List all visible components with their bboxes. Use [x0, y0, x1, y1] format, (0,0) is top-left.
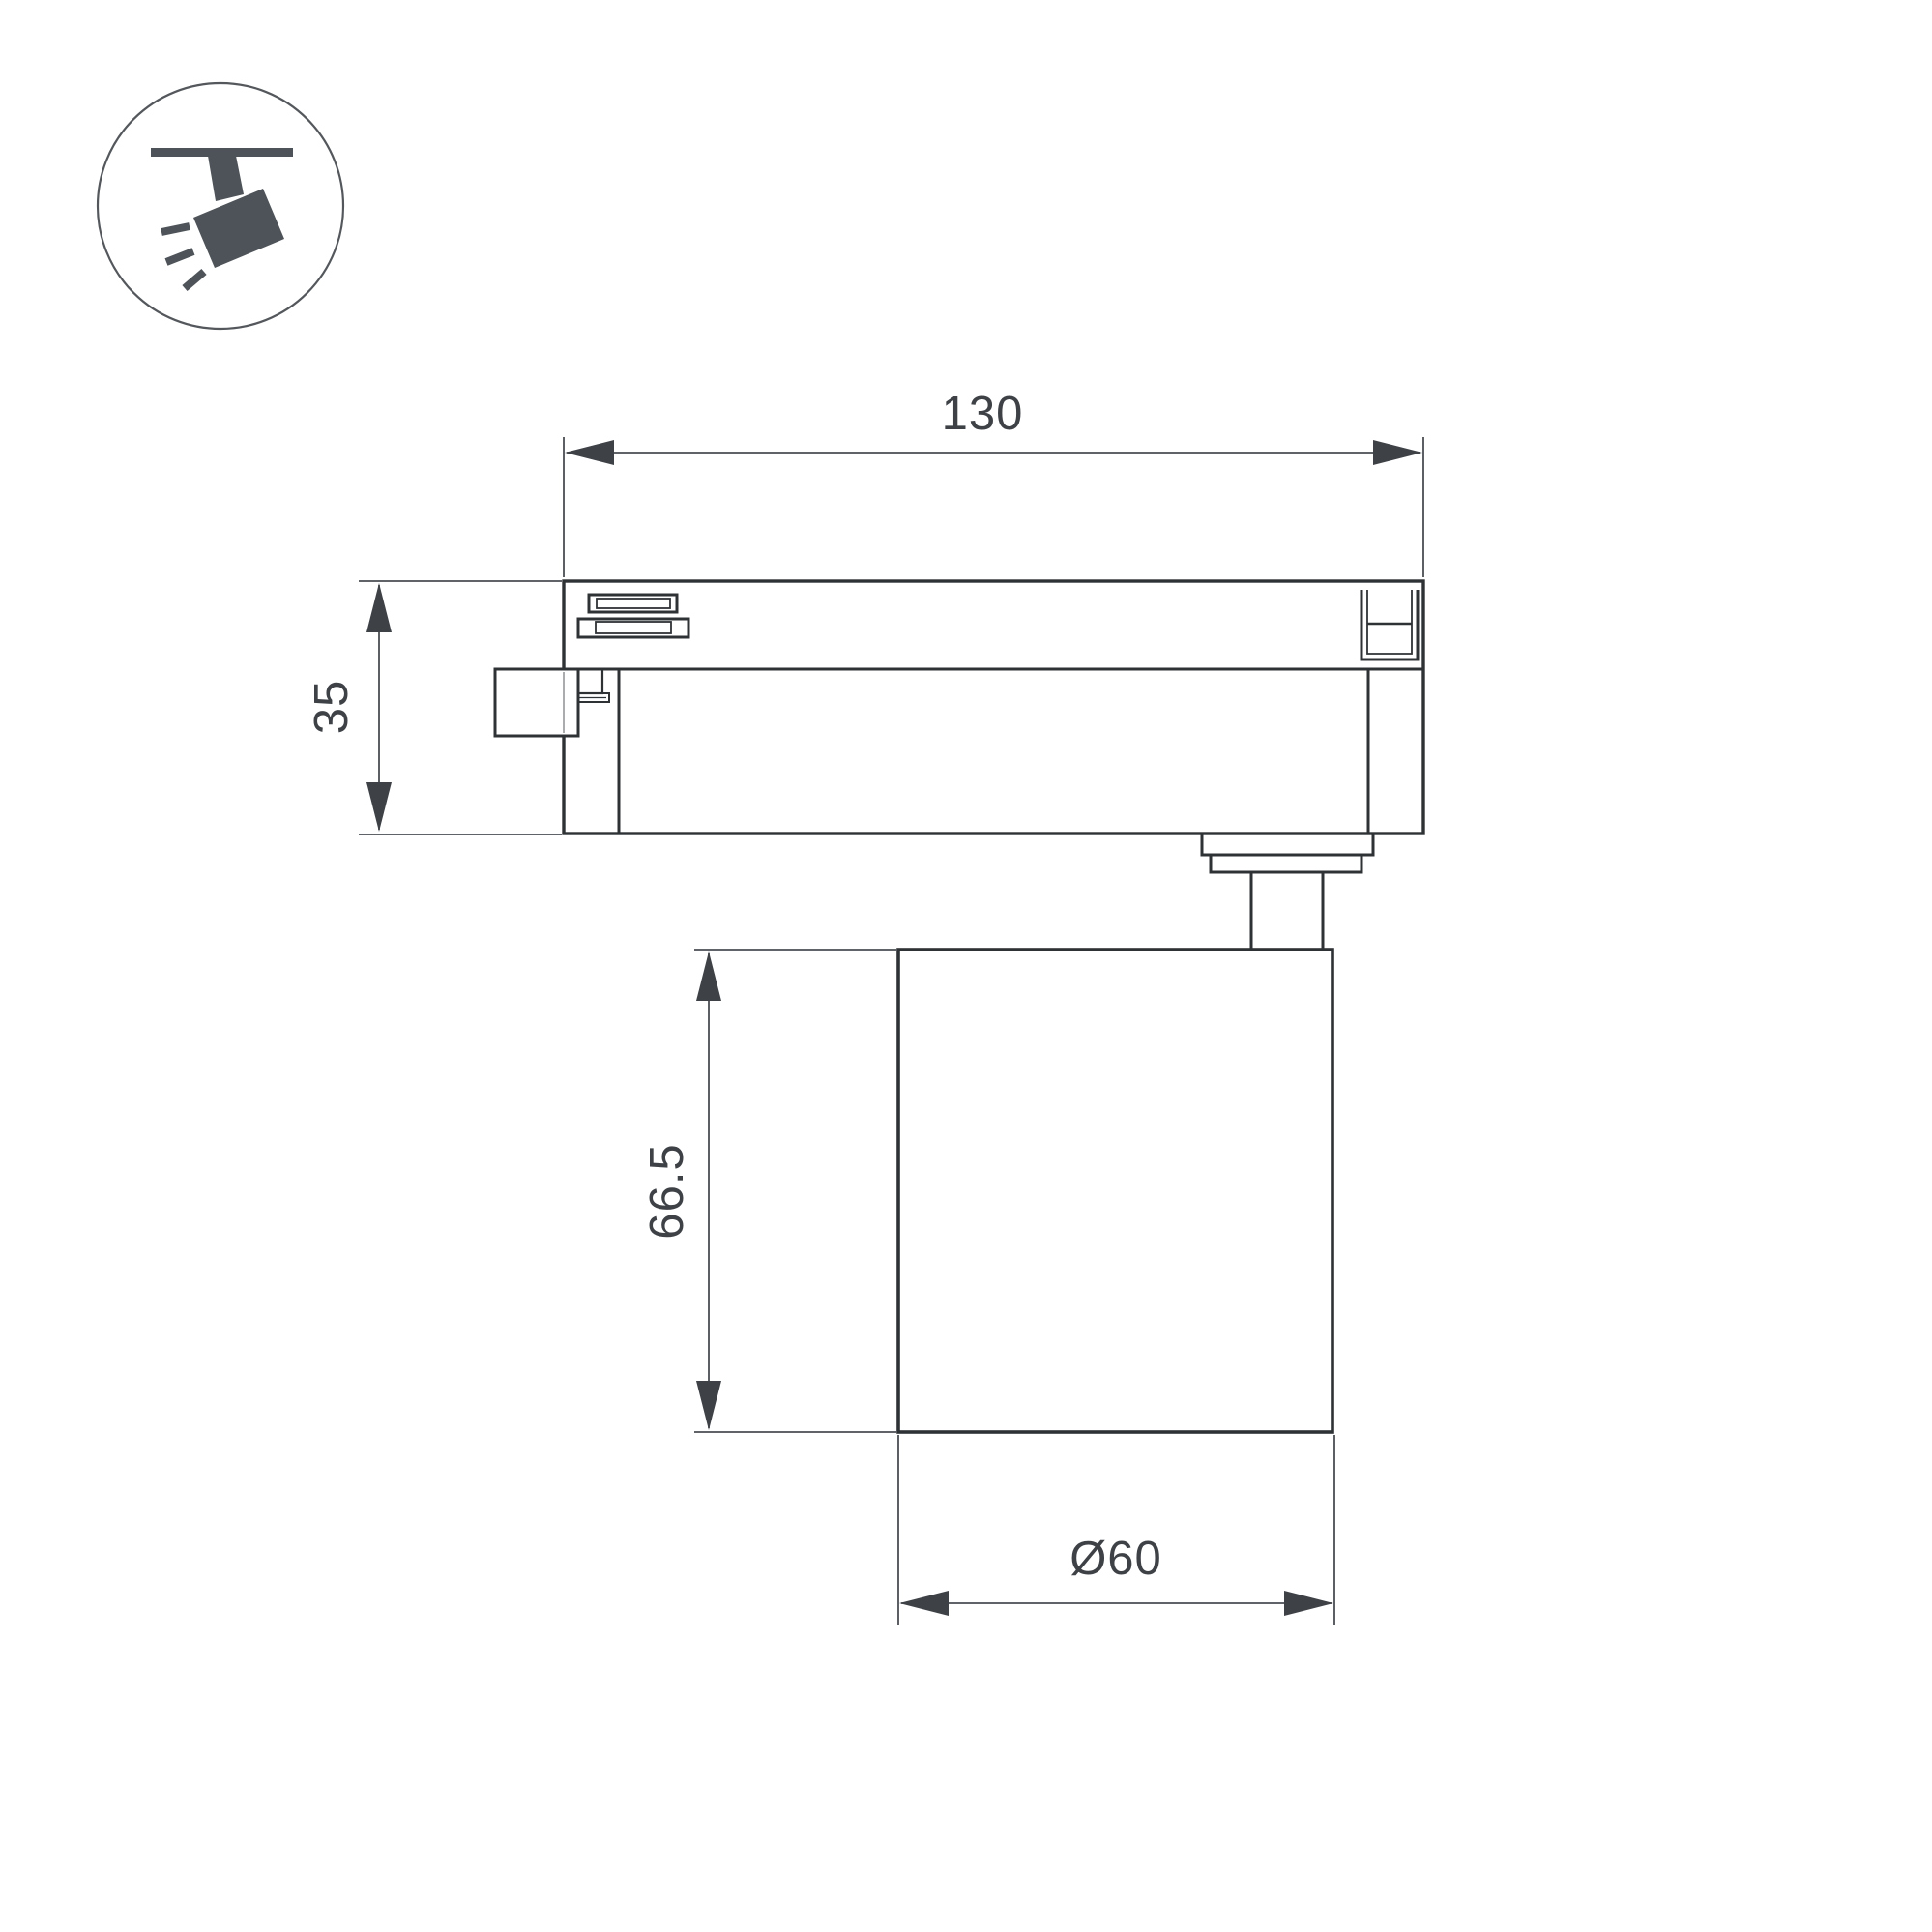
dimension-label-body-diameter: Ø60	[1069, 1533, 1162, 1585]
arrowhead-left	[899, 1591, 949, 1616]
arrowhead-right	[1284, 1591, 1333, 1616]
contact-clip-upper-inner	[597, 599, 670, 608]
dimension-label-body-height: 66.5	[641, 1143, 693, 1239]
dimension-track-length: 130	[564, 388, 1423, 577]
dimension-track-length-lines	[564, 437, 1423, 577]
lamp-body-rect	[898, 950, 1332, 1432]
dimension-body-diameter-lines	[898, 1435, 1334, 1625]
lever-notch-box	[578, 669, 602, 693]
track-adapter-outline	[564, 581, 1423, 834]
arrowhead-right	[1373, 440, 1422, 465]
dimension-body-height-lines	[694, 950, 896, 1432]
arrowhead-top	[366, 583, 392, 632]
lever-box	[495, 669, 578, 736]
contact-clip-lower-inner	[596, 622, 671, 633]
arrowhead-left	[565, 440, 614, 465]
dimension-body-diameter: Ø60	[898, 1435, 1334, 1625]
latch-u-inner	[1367, 590, 1412, 654]
track-spotlight-icon	[98, 83, 343, 329]
track-light-technical-drawing: 130 35 66.5 Ø60	[0, 0, 1932, 1932]
icon-ceiling-track-bar	[151, 148, 293, 157]
joint-step-2	[1211, 855, 1361, 872]
arrowhead-top	[696, 951, 721, 1001]
joint-step-1	[1202, 834, 1373, 855]
dimension-label-track-length: 130	[942, 388, 1024, 440]
icon-circle-border	[98, 83, 343, 329]
arrowhead-bottom	[696, 1381, 721, 1430]
swivel-joint	[1202, 834, 1373, 950]
arrowhead-bottom	[366, 782, 392, 832]
dimension-label-track-height: 35	[306, 680, 358, 735]
adapter-body-rect	[564, 581, 1423, 834]
contact-clip-upper-outer	[589, 595, 677, 612]
locking-lever	[495, 669, 609, 736]
technical-drawing-page: 130 35 66.5 Ø60	[0, 0, 1932, 1932]
dimension-body-height: 66.5	[641, 950, 896, 1432]
